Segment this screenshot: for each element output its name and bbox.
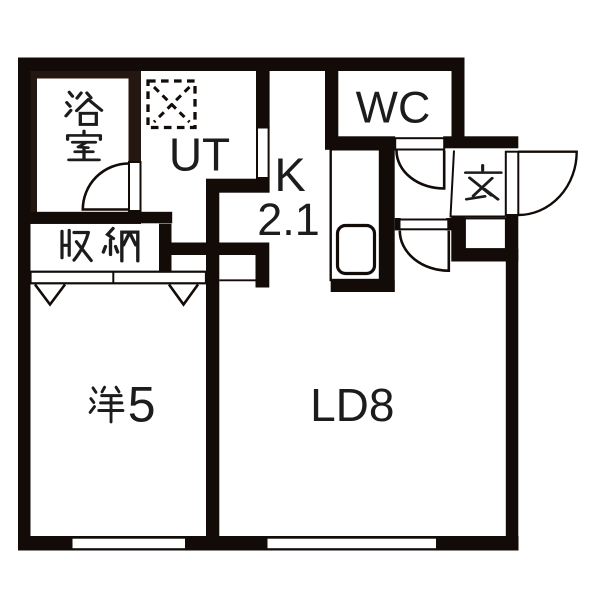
svg-text:2.1: 2.1 [257, 194, 320, 245]
svg-text:LD8: LD8 [310, 379, 394, 431]
svg-text:UT: UT [169, 128, 230, 180]
svg-text:WC: WC [356, 83, 431, 133]
svg-text:5: 5 [128, 377, 156, 433]
